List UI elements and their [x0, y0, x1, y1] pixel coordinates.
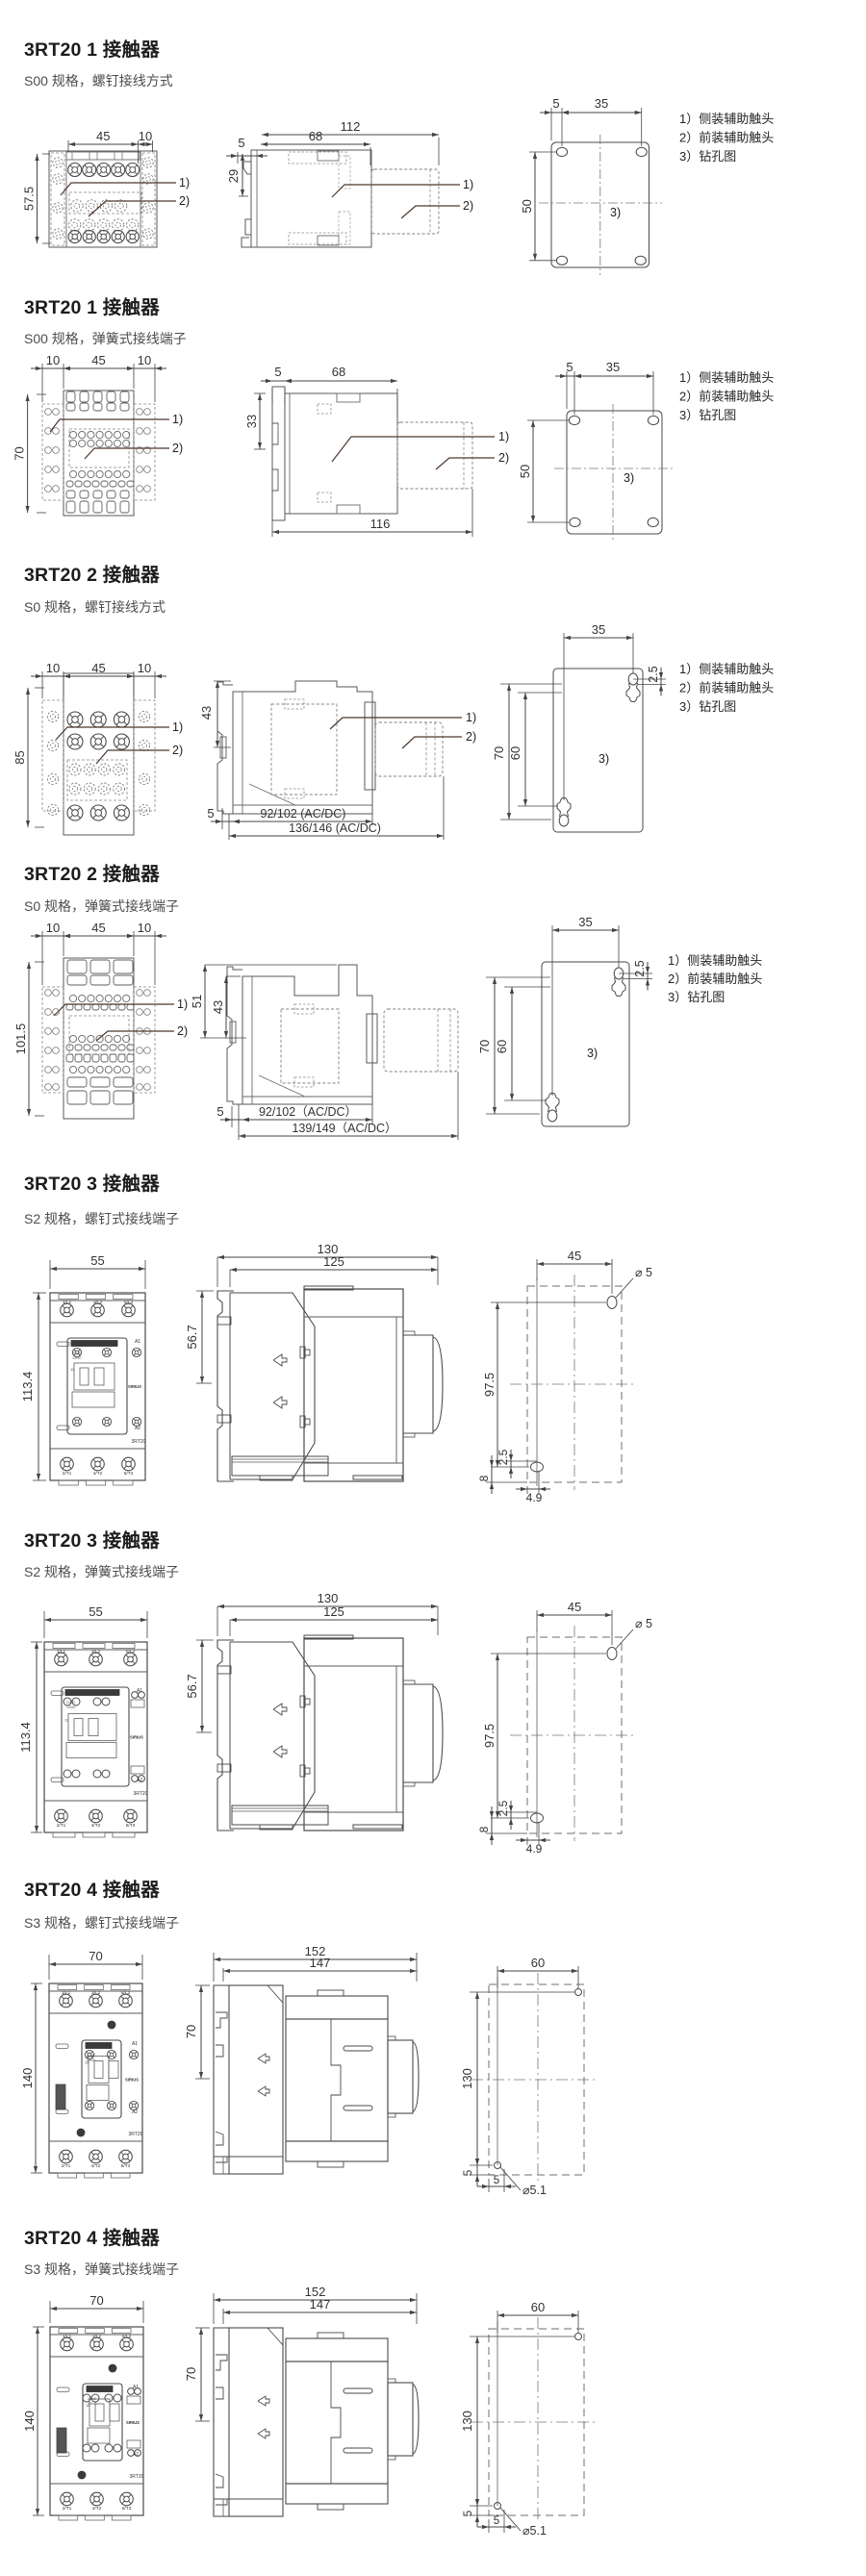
svg-text:92/102（AC/DC）: 92/102（AC/DC） [259, 1105, 357, 1119]
svg-text:70: 70 [89, 1949, 102, 1963]
svg-text:43: 43 [199, 706, 214, 720]
svg-text:4.9: 4.9 [526, 1491, 543, 1504]
svg-text:6/T3: 6/T3 [122, 2506, 132, 2512]
svg-text:3）钻孔图: 3）钻孔图 [679, 408, 736, 422]
svg-text:2/T1: 2/T1 [57, 1823, 66, 1829]
svg-text:5: 5 [552, 96, 559, 111]
svg-text:140: 140 [20, 2068, 35, 2089]
svg-text:10: 10 [138, 353, 151, 367]
svg-text:5: 5 [566, 360, 573, 374]
svg-text:3RT20 1 接触器: 3RT20 1 接触器 [24, 296, 160, 318]
svg-text:35: 35 [592, 622, 605, 637]
svg-text:60: 60 [508, 746, 522, 760]
svg-text:3): 3) [587, 1047, 598, 1060]
svg-text:92/102 (AC/DC): 92/102 (AC/DC) [261, 807, 346, 821]
svg-text:113.4: 113.4 [20, 1372, 35, 1402]
svg-text:1）侧装辅助触头: 1）侧装辅助触头 [679, 662, 774, 676]
svg-text:4.9: 4.9 [526, 1842, 543, 1856]
svg-text:5: 5 [238, 136, 244, 150]
svg-text:10: 10 [138, 921, 151, 935]
svg-text:45: 45 [568, 1600, 581, 1614]
svg-text:97.5: 97.5 [482, 1724, 497, 1748]
svg-text:10: 10 [46, 353, 60, 367]
svg-text:60: 60 [531, 2300, 545, 2314]
svg-text:2.5: 2.5 [647, 666, 660, 682]
svg-text:3）钻孔图: 3）钻孔图 [679, 149, 736, 164]
svg-text:2）前装辅助触头: 2）前装辅助触头 [679, 131, 774, 145]
svg-text:2): 2) [172, 744, 183, 757]
svg-text:70: 70 [492, 746, 506, 760]
svg-text:147: 147 [310, 1956, 331, 1970]
svg-text:⌀5.1: ⌀5.1 [522, 2184, 547, 2197]
svg-text:55: 55 [89, 1604, 102, 1619]
svg-text:10: 10 [139, 129, 152, 143]
svg-text:S2 规格，弹簧式接线端子: S2 规格，弹簧式接线端子 [24, 1564, 179, 1579]
svg-text:3): 3) [624, 471, 634, 485]
svg-text:5: 5 [494, 2515, 499, 2527]
svg-text:2): 2) [172, 442, 183, 455]
svg-text:3RT20 1 接触器: 3RT20 1 接触器 [24, 38, 160, 61]
svg-text:1): 1) [179, 176, 190, 189]
svg-text:6/T3: 6/T3 [124, 1471, 134, 1477]
svg-text:10: 10 [46, 921, 60, 935]
svg-text:51: 51 [190, 995, 204, 1008]
svg-text:2）前装辅助触头: 2）前装辅助触头 [679, 390, 774, 404]
svg-text:5/L3: 5/L3 [124, 1300, 134, 1305]
svg-text:139/149（AC/DC）: 139/149（AC/DC） [292, 1122, 396, 1135]
svg-text:3RT20 2 接触器: 3RT20 2 接触器 [24, 564, 160, 586]
svg-text:1): 1) [172, 413, 183, 426]
svg-text:8: 8 [477, 1826, 491, 1832]
svg-text:5/L3: 5/L3 [122, 2334, 132, 2339]
svg-text:SIRIUS: SIRIUS [125, 2078, 139, 2083]
svg-text:3/L2: 3/L2 [91, 1990, 101, 1996]
svg-text:45: 45 [91, 661, 105, 675]
svg-text:A2: A2 [133, 2452, 139, 2458]
svg-text:130: 130 [460, 2068, 474, 2089]
svg-text:70: 70 [477, 1040, 492, 1053]
svg-text:4/T2: 4/T2 [92, 2506, 102, 2512]
svg-text:2/T1: 2/T1 [62, 2163, 71, 2169]
svg-text:5/L3: 5/L3 [121, 1990, 131, 1996]
svg-text:3RT20 3 接触器: 3RT20 3 接触器 [24, 1529, 160, 1552]
svg-text:3RT20 4 接触器: 3RT20 4 接触器 [24, 1879, 160, 1901]
svg-text:55: 55 [90, 1253, 104, 1268]
svg-text:5: 5 [274, 365, 281, 379]
svg-text:2）前装辅助触头: 2）前装辅助触头 [679, 681, 774, 695]
svg-text:113.4: 113.4 [18, 1722, 33, 1753]
svg-text:SIRIUS: SIRIUS [128, 1384, 141, 1389]
svg-text:140: 140 [22, 2411, 37, 2432]
svg-text:2): 2) [179, 194, 190, 208]
svg-text:125: 125 [323, 1604, 344, 1619]
svg-text:101.5: 101.5 [13, 1023, 28, 1055]
svg-text:2): 2) [498, 451, 509, 465]
svg-text:S3 规格，螺钉式接线端子: S3 规格，螺钉式接线端子 [24, 1915, 179, 1931]
svg-text:4/T2: 4/T2 [93, 1471, 103, 1477]
svg-text:A2: A2 [137, 1778, 142, 1783]
svg-text:3RT20 2 接触器: 3RT20 2 接触器 [24, 863, 160, 885]
svg-text:21NC: 21NC [88, 2397, 97, 2401]
svg-text:8: 8 [477, 1475, 491, 1481]
svg-text:3RT20: 3RT20 [132, 1439, 146, 1445]
svg-text:3RT20: 3RT20 [134, 1791, 148, 1797]
svg-text:3RT20: 3RT20 [129, 2132, 143, 2137]
svg-text:56.7: 56.7 [185, 1325, 199, 1349]
svg-text:13NO: 13NO [66, 1705, 76, 1709]
svg-text:⌀ 5: ⌀ 5 [635, 1617, 652, 1630]
svg-text:21NC: 21NC [87, 2054, 96, 2058]
svg-text:13NO: 13NO [72, 1356, 82, 1360]
svg-text:1): 1) [177, 998, 188, 1011]
svg-text:21NC: 21NC [66, 1701, 76, 1705]
svg-text:35: 35 [595, 96, 608, 111]
svg-text:S2 规格，螺钉式接线端子: S2 规格，螺钉式接线端子 [24, 1211, 179, 1226]
svg-text:A1: A1 [133, 2385, 139, 2390]
svg-text:45: 45 [91, 921, 105, 935]
svg-text:116: 116 [370, 517, 391, 531]
svg-text:130: 130 [318, 1591, 339, 1605]
svg-text:57.5: 57.5 [22, 187, 37, 211]
svg-text:97.5: 97.5 [482, 1373, 497, 1397]
svg-text:1）侧装辅助触头: 1）侧装辅助触头 [668, 953, 762, 968]
svg-text:35: 35 [606, 360, 620, 374]
svg-text:SIRIUS: SIRIUS [126, 2420, 140, 2425]
svg-text:2.5: 2.5 [497, 1800, 510, 1816]
svg-text:1/L1: 1/L1 [57, 1649, 66, 1654]
svg-text:2）前装辅助触头: 2）前装辅助触头 [668, 972, 762, 986]
svg-text:5: 5 [461, 2169, 474, 2176]
svg-text:SIRIUS: SIRIUS [130, 1735, 143, 1740]
svg-text:21NC: 21NC [72, 1351, 82, 1355]
svg-text:70: 70 [184, 2367, 198, 2381]
svg-text:3）钻孔图: 3）钻孔图 [679, 699, 736, 714]
svg-text:⌀5.1: ⌀5.1 [522, 2524, 547, 2538]
svg-text:3): 3) [610, 206, 621, 219]
svg-text:2/T1: 2/T1 [63, 1471, 72, 1477]
svg-text:130: 130 [460, 2411, 474, 2432]
svg-text:29: 29 [226, 169, 241, 183]
svg-text:68: 68 [309, 129, 322, 143]
svg-text:2.5: 2.5 [497, 1449, 510, 1465]
svg-text:1）侧装辅助触头: 1）侧装辅助触头 [679, 112, 774, 126]
svg-text:S00 规格，螺钉接线方式: S00 规格，螺钉接线方式 [24, 73, 173, 88]
svg-text:45: 45 [96, 129, 110, 143]
svg-text:6/T3: 6/T3 [126, 1823, 136, 1829]
svg-text:10: 10 [46, 661, 60, 675]
svg-text:5: 5 [494, 2175, 499, 2186]
svg-text:136/146 (AC/DC): 136/146 (AC/DC) [289, 821, 381, 835]
svg-text:A1: A1 [135, 1339, 140, 1345]
svg-text:70: 70 [13, 446, 27, 460]
svg-text:1): 1) [172, 720, 183, 734]
svg-text:2): 2) [466, 730, 476, 744]
svg-text:70: 70 [89, 2293, 103, 2308]
svg-text:147: 147 [310, 2297, 331, 2311]
svg-text:1/L1: 1/L1 [63, 2334, 72, 2339]
svg-text:70: 70 [184, 2025, 198, 2038]
svg-text:3): 3) [599, 752, 609, 766]
svg-text:5: 5 [207, 806, 214, 821]
svg-text:1): 1) [466, 711, 476, 724]
svg-text:1): 1) [498, 430, 509, 443]
svg-text:1): 1) [463, 178, 473, 191]
svg-text:4/T2: 4/T2 [91, 1823, 101, 1829]
svg-text:1/L1: 1/L1 [62, 1990, 71, 1996]
svg-text:3/L2: 3/L2 [92, 2334, 102, 2339]
svg-text:112: 112 [341, 119, 361, 134]
svg-text:1）侧装辅助触头: 1）侧装辅助触头 [679, 370, 774, 385]
svg-text:2.5: 2.5 [633, 960, 647, 976]
svg-text:5: 5 [216, 1104, 223, 1119]
svg-text:60: 60 [495, 1040, 509, 1053]
svg-text:125: 125 [323, 1254, 344, 1269]
svg-text:68: 68 [332, 365, 345, 379]
svg-text:6/T3: 6/T3 [121, 2163, 131, 2169]
svg-text:A2: A2 [132, 2109, 138, 2115]
svg-text:43: 43 [211, 1000, 225, 1014]
svg-text:85: 85 [13, 750, 27, 764]
svg-text:5: 5 [461, 2510, 474, 2516]
svg-text:S0 规格，螺钉接线方式: S0 规格，螺钉接线方式 [24, 599, 166, 615]
svg-text:2/T1: 2/T1 [63, 2506, 72, 2512]
svg-text:45: 45 [91, 353, 105, 367]
svg-text:3RT20: 3RT20 [130, 2474, 144, 2480]
svg-text:S00 规格，弹簧式接线端子: S00 规格，弹簧式接线端子 [24, 331, 187, 346]
svg-text:3/L2: 3/L2 [91, 1649, 101, 1654]
svg-text:3RT20 3 接触器: 3RT20 3 接触器 [24, 1173, 160, 1195]
svg-text:3RT20 4 接触器: 3RT20 4 接触器 [24, 2227, 160, 2249]
svg-text:S3 规格，弹簧式接线端子: S3 规格，弹簧式接线端子 [24, 2261, 179, 2277]
svg-text:50: 50 [520, 199, 534, 213]
svg-text:2): 2) [177, 1024, 188, 1038]
svg-text:A2: A2 [135, 1426, 140, 1431]
svg-text:4/T2: 4/T2 [91, 2163, 101, 2169]
svg-text:50: 50 [518, 465, 532, 478]
svg-text:⌀ 5: ⌀ 5 [635, 1266, 652, 1279]
svg-text:3/L2: 3/L2 [93, 1300, 103, 1305]
svg-text:33: 33 [244, 415, 259, 428]
svg-text:45: 45 [568, 1249, 581, 1263]
svg-text:5/L3: 5/L3 [126, 1649, 136, 1654]
svg-text:60: 60 [531, 1956, 545, 1970]
svg-text:10: 10 [138, 661, 151, 675]
svg-text:35: 35 [578, 915, 592, 929]
svg-text:56.7: 56.7 [185, 1674, 199, 1698]
svg-text:S0 规格，弹簧式接线端子: S0 规格，弹簧式接线端子 [24, 898, 179, 914]
svg-text:1/L1: 1/L1 [63, 1300, 72, 1305]
svg-text:3）钻孔图: 3）钻孔图 [668, 990, 725, 1004]
svg-text:A1: A1 [137, 1688, 142, 1694]
svg-text:A1: A1 [132, 2041, 138, 2047]
svg-text:2): 2) [463, 199, 473, 213]
